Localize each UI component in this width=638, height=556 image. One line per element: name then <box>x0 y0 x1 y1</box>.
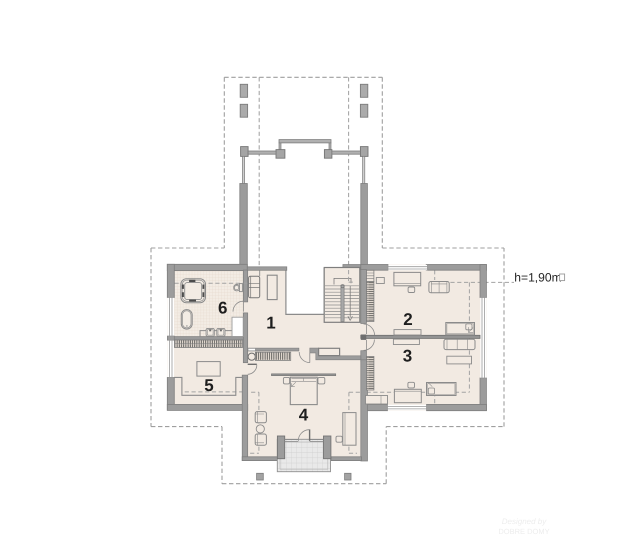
svg-text:Designed by: Designed by <box>502 517 547 526</box>
svg-text:4: 4 <box>299 406 309 425</box>
svg-text:3: 3 <box>403 347 412 366</box>
svg-text:2: 2 <box>403 310 412 329</box>
svg-text:6: 6 <box>218 299 227 318</box>
svg-text:DOBRE DOMY: DOBRE DOMY <box>498 527 549 536</box>
svg-text:1: 1 <box>266 314 275 333</box>
svg-text:h=1,90m: h=1,90m <box>514 270 561 284</box>
svg-text:5: 5 <box>204 376 213 395</box>
